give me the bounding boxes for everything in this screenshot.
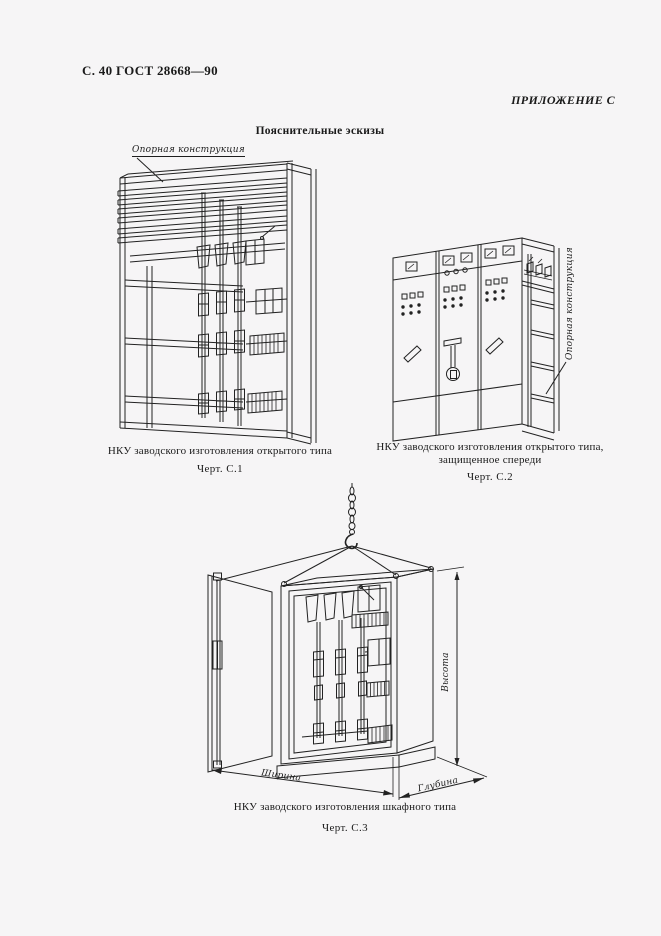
section-title: Пояснительные эскизы [170, 125, 470, 137]
figure-c3-number: Черт. С.3 [195, 822, 495, 834]
figure-c2-caption-line1: НКУ заводского изготовления открытого ти… [368, 441, 612, 454]
c1-leader-line [137, 158, 163, 182]
c2-leader-line [546, 362, 566, 394]
c2-instruments [406, 246, 514, 275]
c3-door [208, 573, 272, 772]
figure-c3-caption: НКУ заводского изготовления шкафного тип… [195, 801, 495, 814]
document-page: С. 40 ГОСТ 28668—90 ПРИЛОЖЕНИЕ С Пояснит… [0, 0, 661, 936]
c3-interior-equipment [302, 585, 392, 744]
figure-c1-drawing [100, 145, 345, 455]
figure-c1-caption: НКУ заводского изготовления открытого ти… [100, 445, 340, 458]
c2-support-structure [522, 238, 566, 440]
c3-chain-and-hook [216, 483, 434, 587]
c2-buttons-indicators [401, 278, 507, 316]
figure-c2-callout: Опорная конструкция [565, 260, 577, 360]
figure-c1-number: Черт. С.1 [100, 463, 340, 475]
figure-c3-dim-height: Высота [441, 622, 453, 722]
c2-switch-handles [404, 338, 503, 381]
c2-front-panels [393, 238, 522, 441]
page-header: С. 40 ГОСТ 28668—90 [82, 63, 218, 79]
figure-c2-caption-line2: защищенное спереди [368, 454, 612, 467]
annex-label: ПРИЛОЖЕНИЕ С [455, 93, 615, 108]
